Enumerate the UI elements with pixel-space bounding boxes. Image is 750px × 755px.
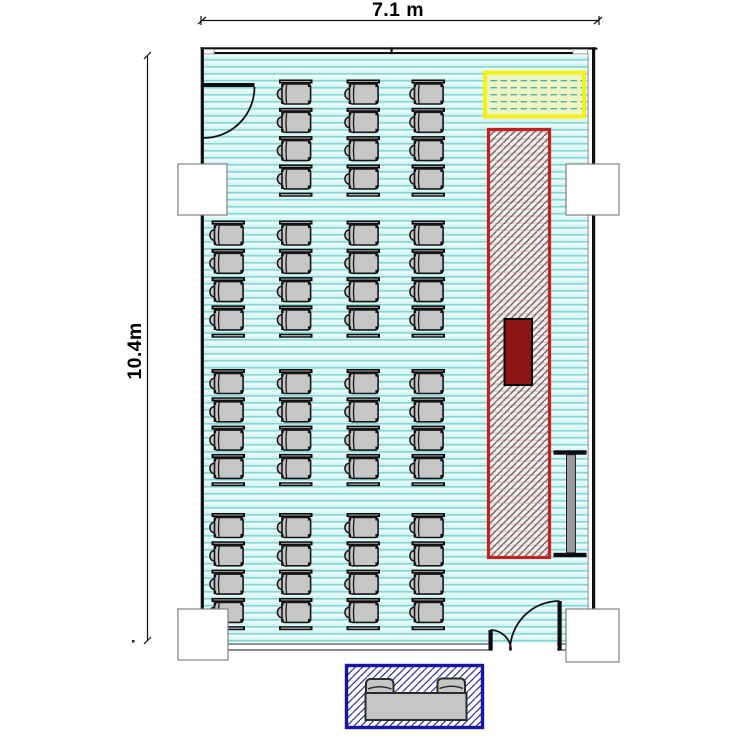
svg-text:7.1 m: 7.1 m xyxy=(372,0,424,21)
svg-text:10.4m: 10.4m xyxy=(124,322,146,379)
